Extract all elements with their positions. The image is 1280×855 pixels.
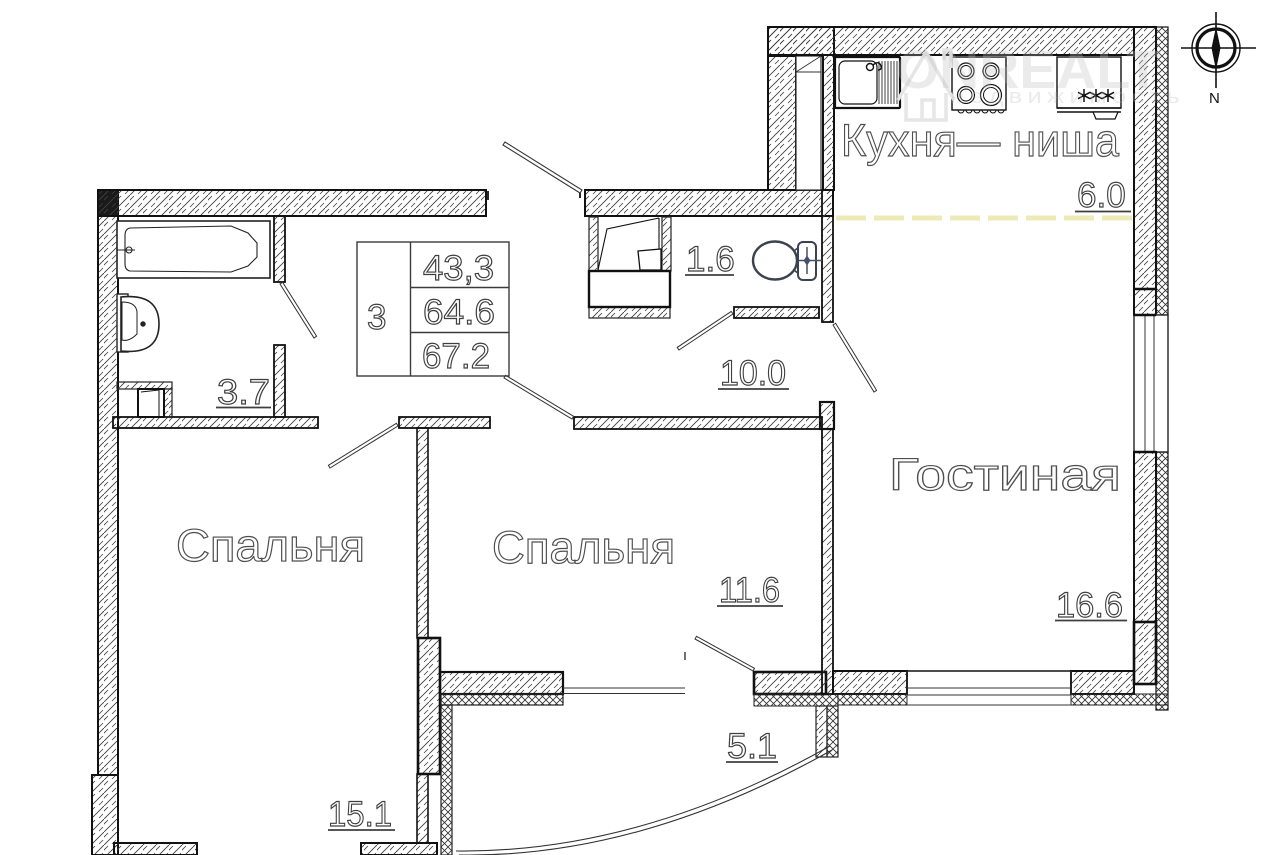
svg-text:5.1: 5.1: [727, 727, 777, 766]
svg-text:3: 3: [367, 298, 386, 337]
svg-text:Кухня— ниша: Кухня— ниша: [841, 115, 1120, 166]
svg-text:43,3: 43,3: [423, 249, 494, 288]
svg-text:16.6: 16.6: [1056, 586, 1123, 625]
svg-text:67.2: 67.2: [422, 337, 490, 376]
svg-text:N: N: [1209, 90, 1220, 107]
svg-text:Гостиная: Гостиная: [889, 449, 1121, 500]
svg-text:недвижимость: недвижимость: [950, 86, 1185, 108]
svg-text:Спальня: Спальня: [492, 522, 675, 573]
svg-text:64.6: 64.6: [423, 293, 495, 332]
svg-text:15.1: 15.1: [328, 795, 392, 834]
svg-text:6.0: 6.0: [1077, 176, 1126, 215]
svg-text:10.0: 10.0: [720, 354, 786, 393]
svg-text:11.6: 11.6: [719, 571, 780, 610]
svg-text:3.7: 3.7: [217, 373, 270, 412]
svg-text:Спальня: Спальня: [176, 520, 365, 571]
svg-text:1.6: 1.6: [686, 240, 735, 279]
